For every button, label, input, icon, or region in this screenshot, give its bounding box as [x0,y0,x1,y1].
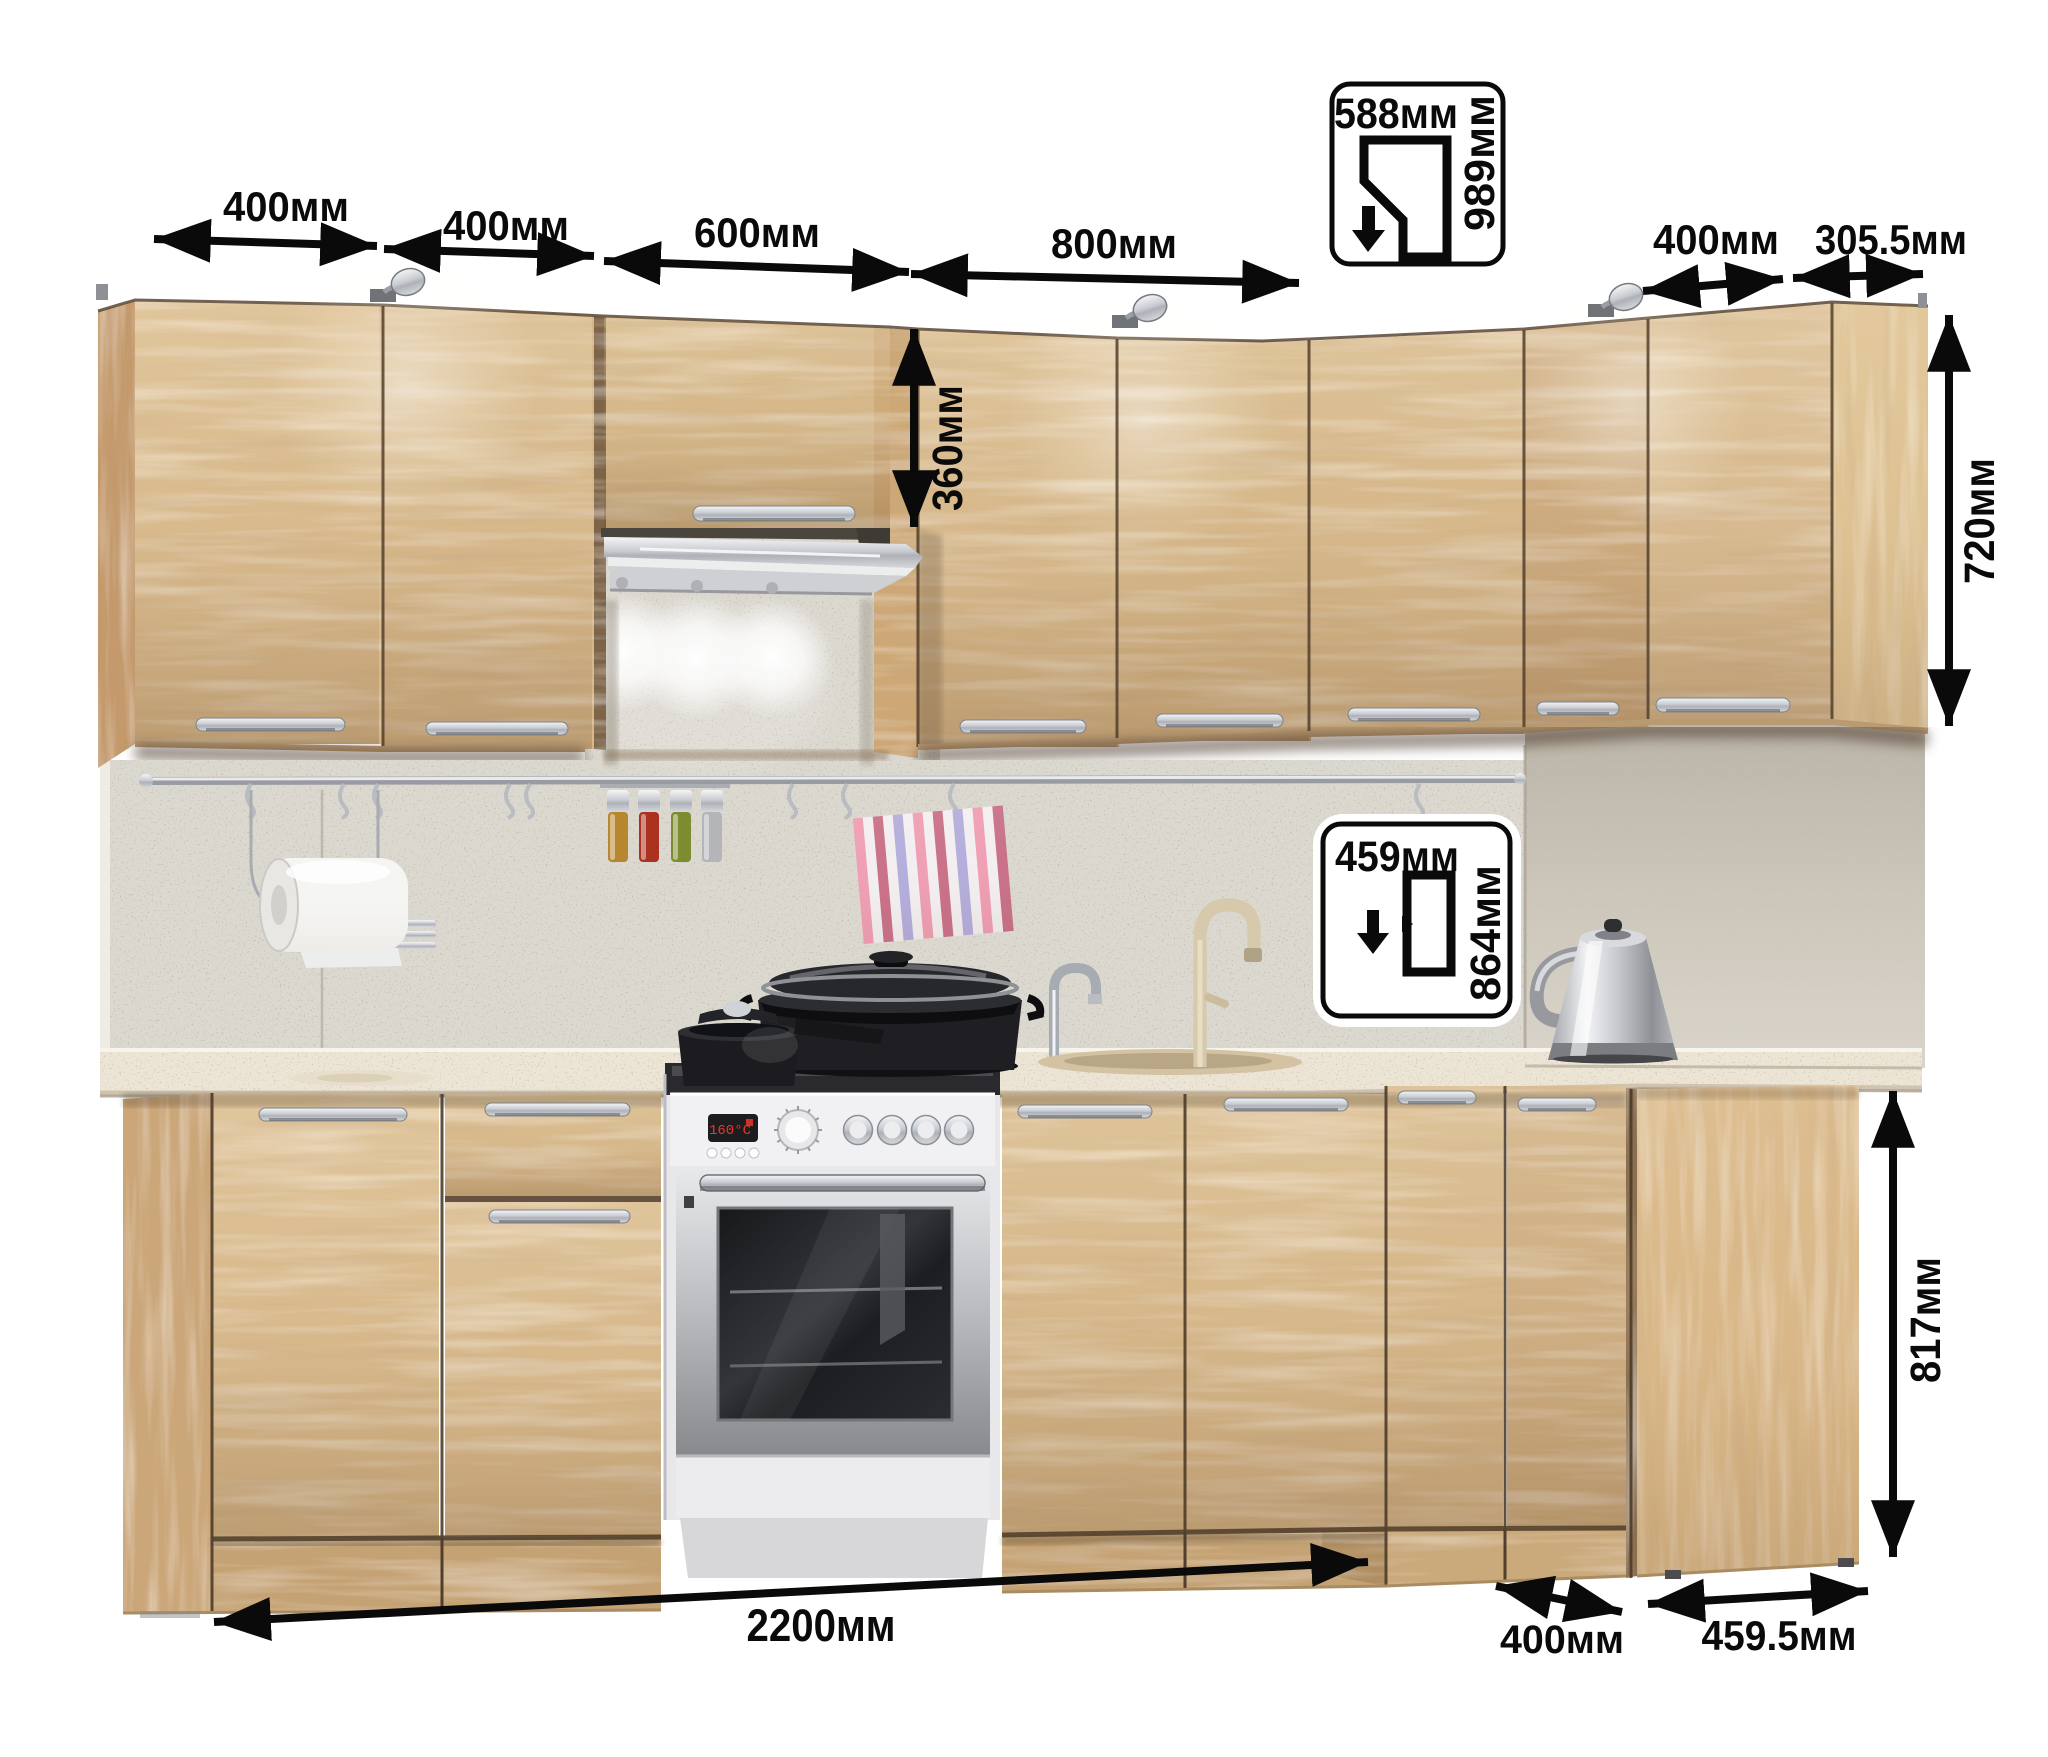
svg-text:800мм: 800мм [1051,220,1177,267]
svg-text:160°C: 160°C [709,1123,751,1139]
svg-text:600мм: 600мм [694,209,820,256]
svg-text:817мм: 817мм [1902,1257,1950,1383]
svg-text:2200мм: 2200мм [747,1600,896,1651]
svg-text:720мм: 720мм [1956,458,2004,584]
svg-text:459.5мм: 459.5мм [1702,1612,1857,1659]
svg-text:400мм: 400мм [443,202,569,249]
svg-text:400мм: 400мм [1500,1618,1624,1662]
svg-text:400мм: 400мм [1653,216,1779,263]
svg-text:864мм: 864мм [1462,865,1510,1001]
svg-text:588мм: 588мм [1334,90,1458,138]
svg-text:400мм: 400мм [223,183,349,230]
svg-text:305.5мм: 305.5мм [1815,216,1967,263]
svg-text:360мм: 360мм [924,385,972,511]
svg-text:989мм: 989мм [1456,95,1504,231]
